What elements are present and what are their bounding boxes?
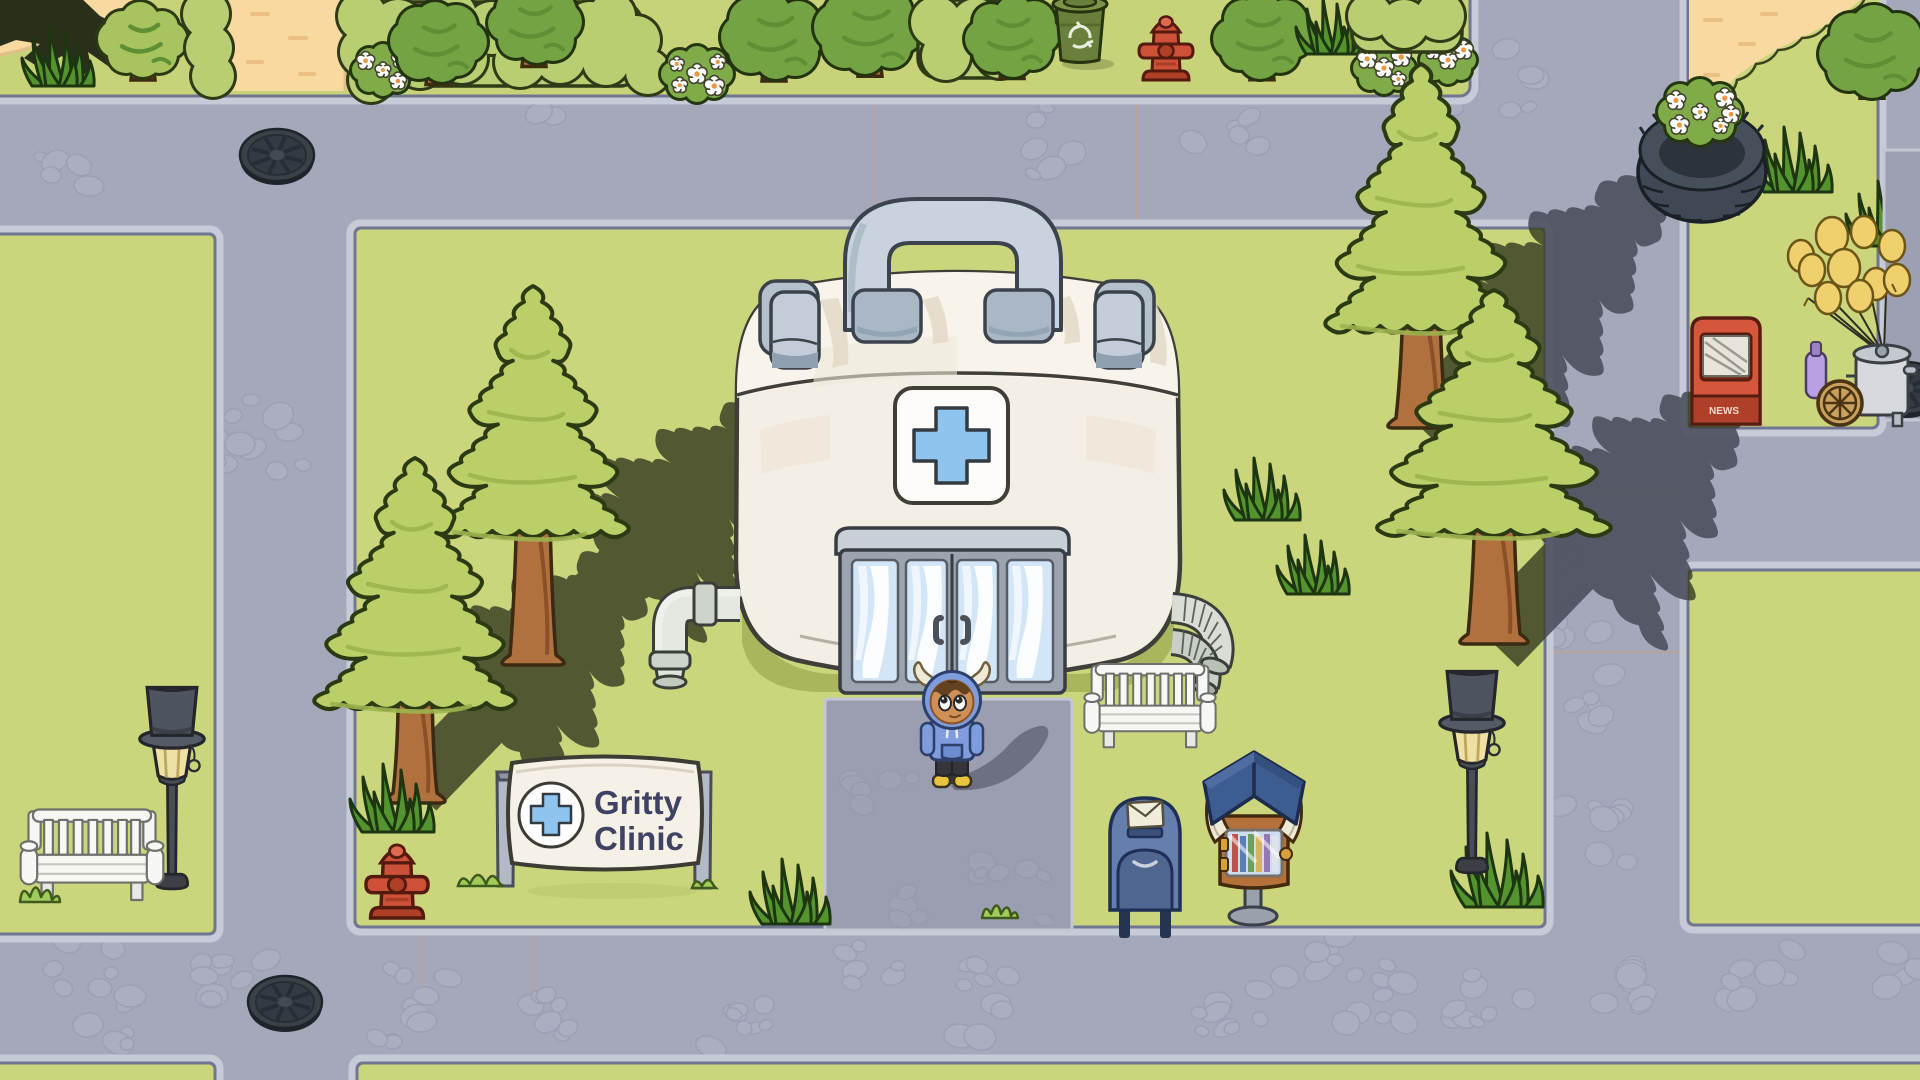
svg-text:NEWS: NEWS (1709, 406, 1739, 417)
svg-text:Gritty: Gritty (594, 784, 683, 821)
svg-text:Clinic: Clinic (594, 820, 684, 857)
